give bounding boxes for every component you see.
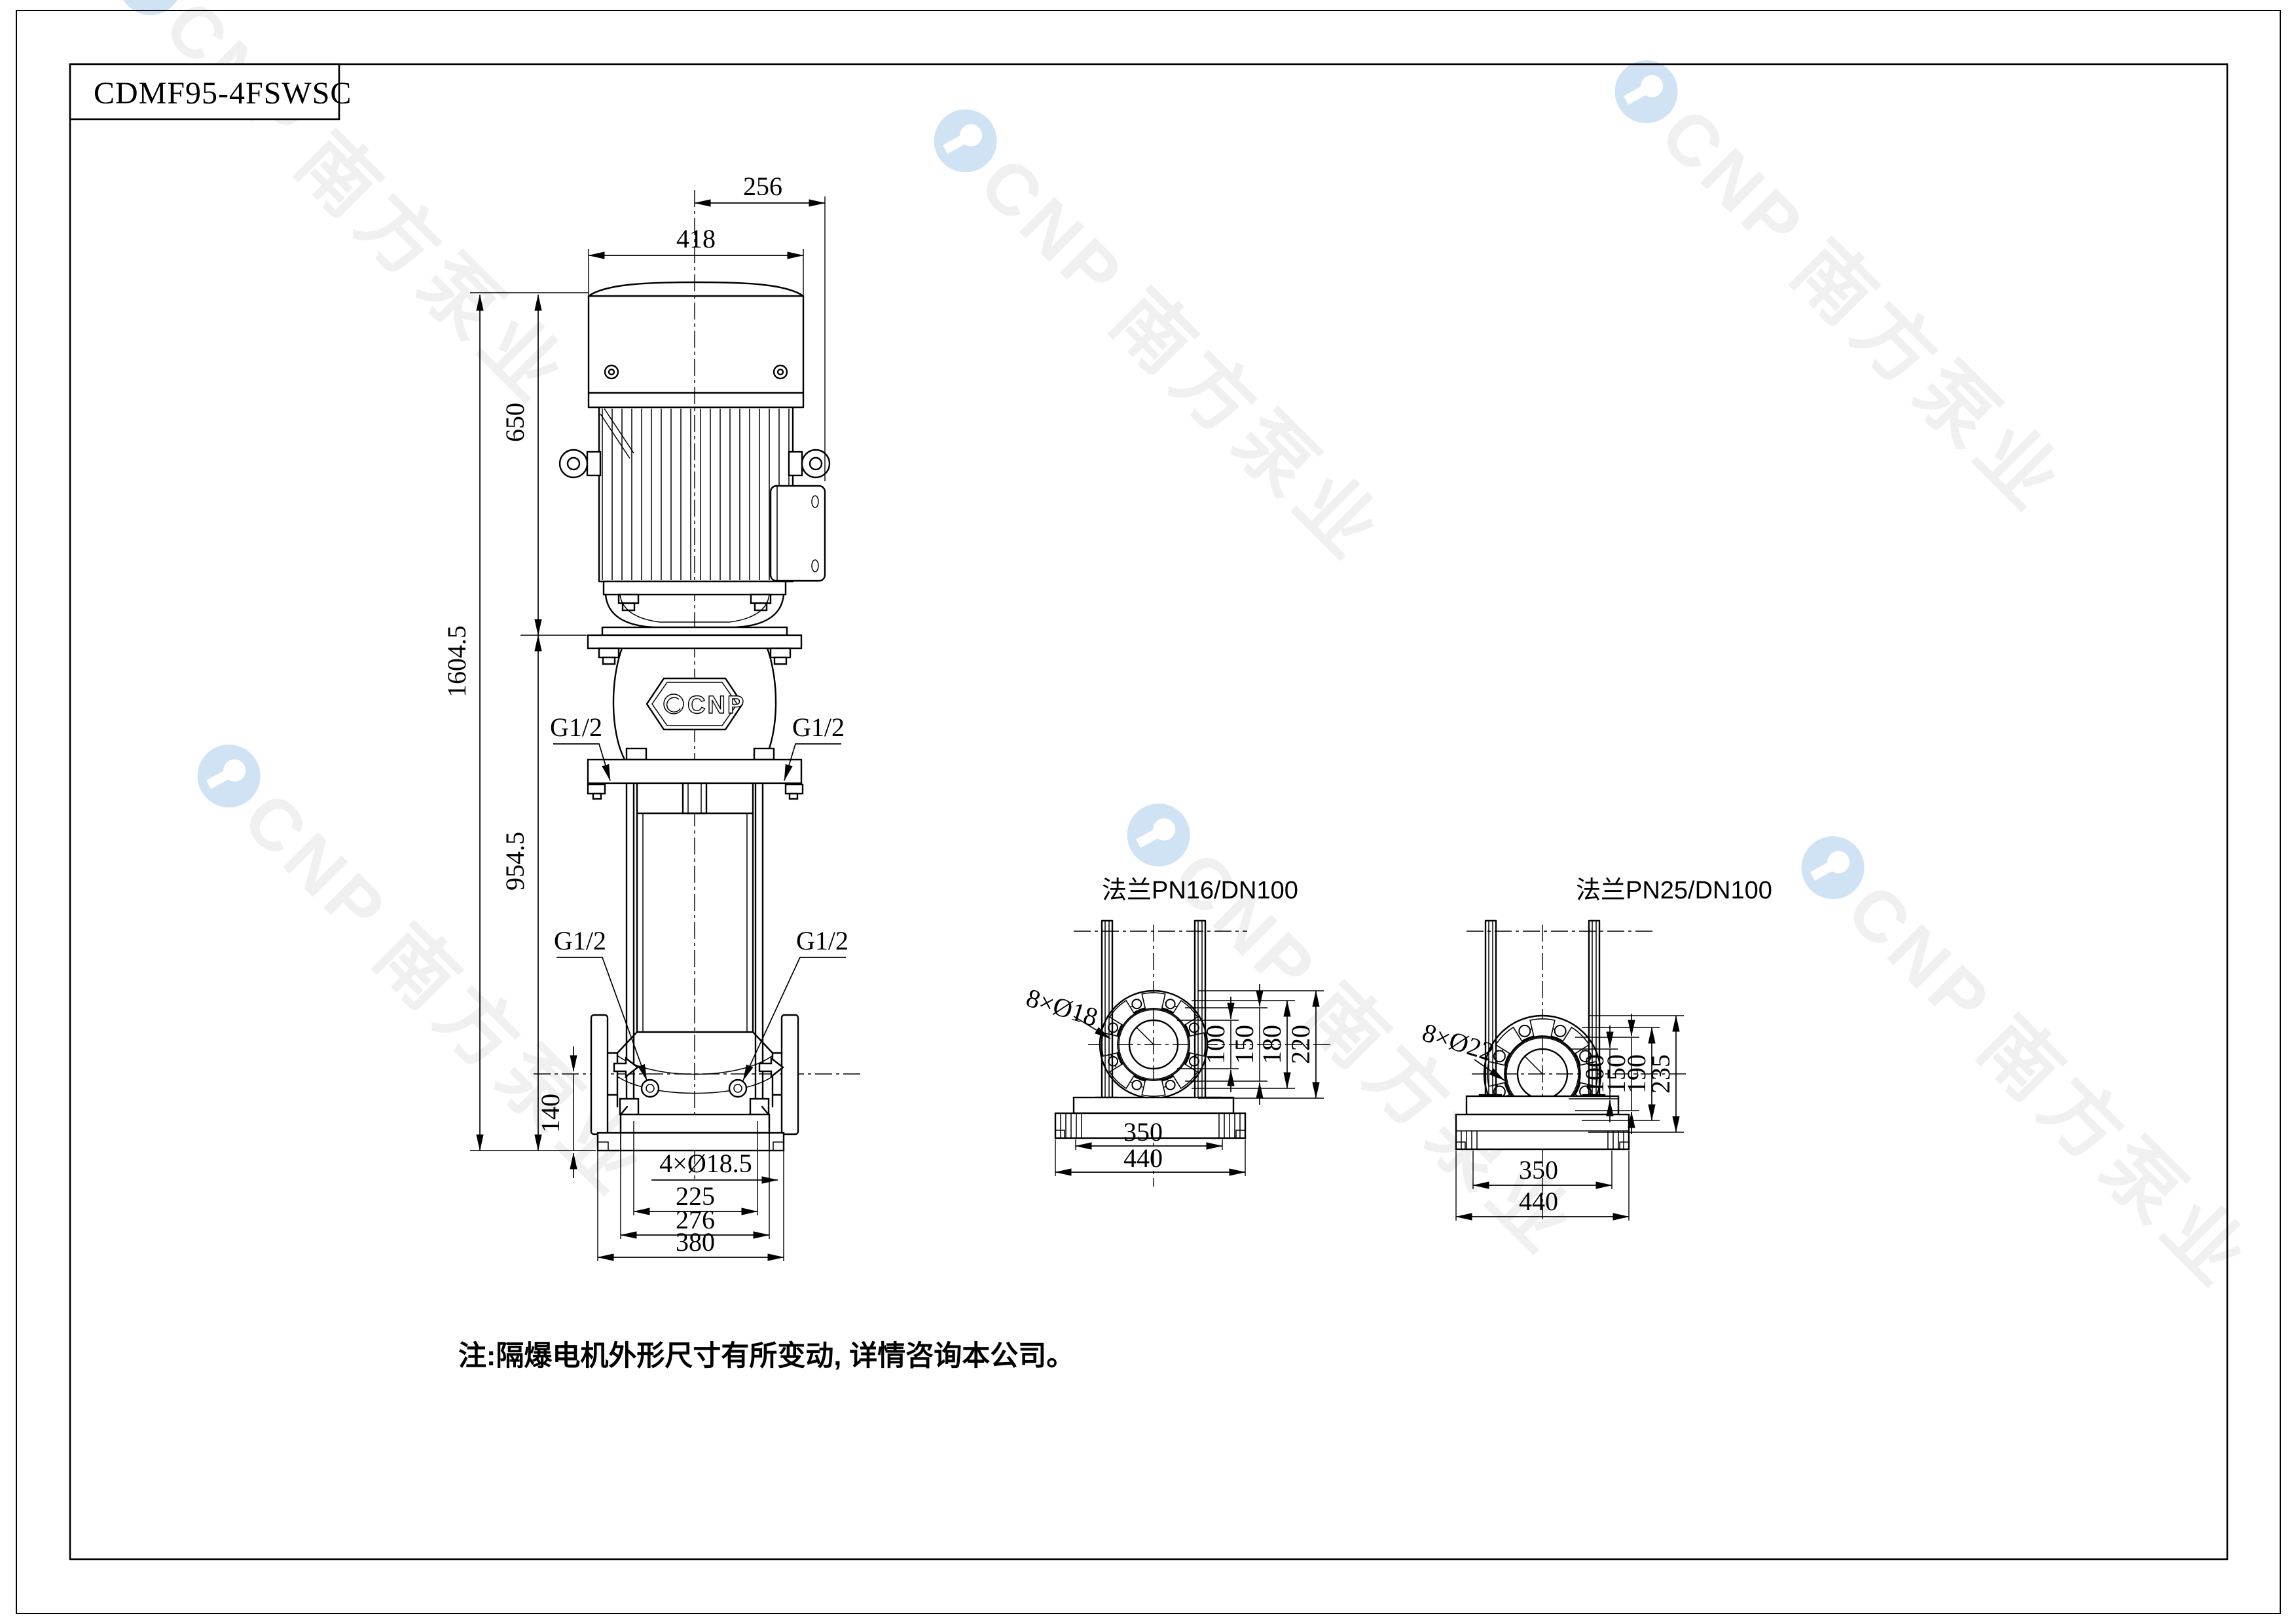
port-label-bottom-left: G1/2	[554, 926, 606, 955]
dim-terminal-box-offset: 256	[743, 172, 782, 201]
drain-plug-right	[729, 1080, 746, 1097]
watermark-brand-cn: 南方泵业	[359, 910, 665, 1215]
anchor-holes-label: 4×Ø18.5	[659, 1149, 752, 1178]
dim-base-350: 350	[1519, 1155, 1558, 1185]
dim-base-440: 440	[1123, 1143, 1163, 1173]
engineering-drawing: CNP 南方泵业 CNP 南方泵业 CNP 南方泵业	[0, 0, 2296, 1624]
drawing-page: { "page": { "title_block_model": "CDMF95…	[0, 0, 2296, 1624]
model-number: CDMF95-4FSWSC	[94, 76, 352, 111]
dim-total-height: 1604.5	[442, 625, 471, 697]
dim-motor-height: 650	[500, 403, 530, 442]
watermark-brand-cn: 南方泵业	[1776, 225, 2082, 531]
dim-raised-face: 150	[1230, 1025, 1259, 1064]
dim-base-440: 440	[1519, 1187, 1558, 1216]
pump-head: CNP	[588, 627, 803, 799]
suction-flange	[591, 1015, 608, 1134]
dim-outer-diameter: 235	[1646, 1054, 1675, 1094]
flange-view-title: 法兰PN16/DN100	[1102, 877, 1298, 904]
dim-base-350: 350	[1123, 1117, 1163, 1147]
flange-view-title: 法兰PN25/DN100	[1576, 877, 1772, 904]
dim-bore: 100	[1201, 1025, 1230, 1064]
drain-plug-left	[642, 1080, 659, 1097]
watermark-brand: CNP	[228, 777, 403, 953]
flange-view-base	[1456, 1096, 1629, 1149]
watermark-brand: CNP	[1157, 836, 1333, 1012]
watermark-brand-cn: 南方泵业	[280, 117, 586, 423]
terminal-box	[771, 486, 825, 581]
dim-bolt-circle: 180	[1257, 1025, 1286, 1064]
dim-outer-diameter: 220	[1286, 1025, 1315, 1064]
lifting-eyebolt-right	[789, 450, 829, 477]
watermark-brand-cn: 南方泵业	[1963, 1001, 2269, 1307]
port-label-top-right: G1/2	[792, 712, 845, 742]
watermark-brand: CNP	[1832, 869, 2007, 1044]
badge-text: CNP	[687, 692, 746, 719]
port-label-bottom-right: G1/2	[796, 926, 848, 955]
watermark-instance: CNP 南方泵业	[174, 725, 664, 1215]
watermark-instance: CNP 南方泵业	[911, 90, 1400, 580]
drawing-note: 注:隔爆电机外形尺寸有所变动, 详情咨询本公司。	[458, 1340, 1074, 1372]
watermark-brand-cn: 南方泵业	[1095, 274, 1401, 580]
dim-motor-width: 418	[676, 224, 716, 253]
lifting-eyebolt-left	[560, 450, 600, 477]
dim-base-outer: 380	[676, 1227, 715, 1257]
watermark-brand: CNP	[1645, 93, 1821, 268]
cnp-badge: CNP	[647, 678, 746, 729]
watermark-brand: CNP	[964, 142, 1140, 318]
title-block: CDMF95-4FSWSC	[70, 64, 352, 119]
motor-body	[599, 407, 793, 581]
watermark-instance: CNP 南方泵业	[1778, 817, 2268, 1306]
port-label-top-left: G1/2	[550, 712, 602, 742]
bolt-holes-label: 8×Ø18	[1023, 983, 1101, 1033]
dim-pump-height: 954.5	[500, 832, 530, 891]
watermark-instance: CNP 南方泵业	[1592, 41, 2081, 530]
discharge-flange	[782, 1015, 798, 1134]
dim-port-height: 140	[536, 1094, 565, 1133]
motor-fan-cover	[589, 282, 803, 407]
